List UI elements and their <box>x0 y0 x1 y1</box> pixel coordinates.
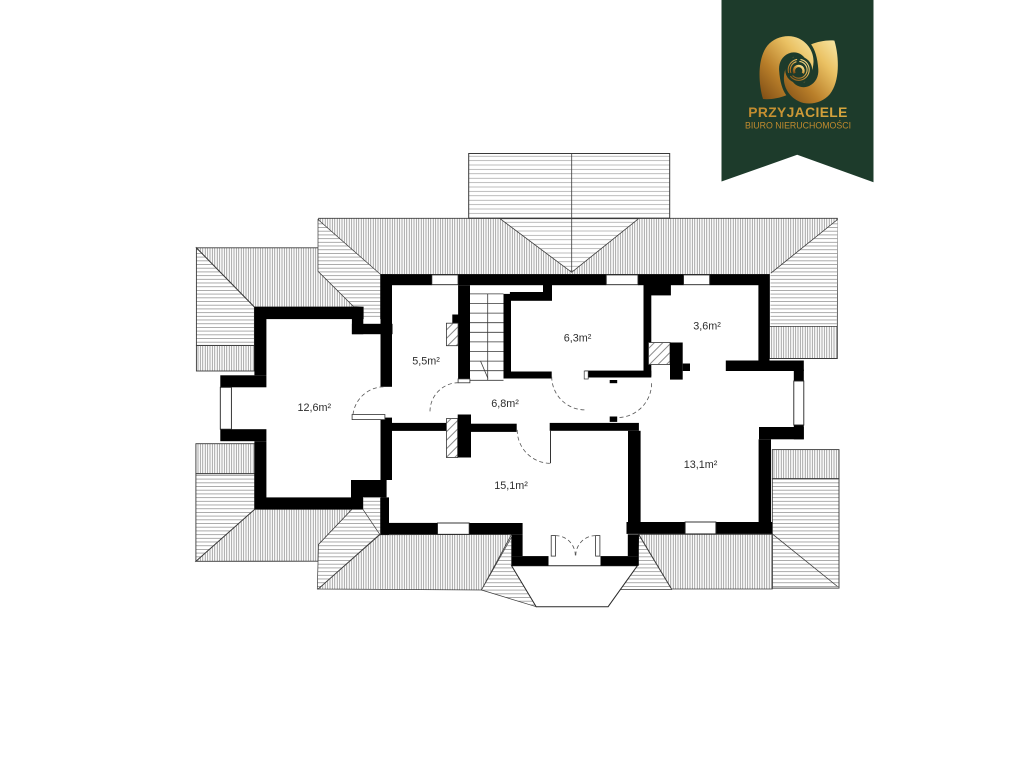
svg-text:PRZYJACIELE: PRZYJACIELE <box>748 105 847 120</box>
svg-text:12,6m²: 12,6m² <box>297 402 331 414</box>
svg-text:6,8m²: 6,8m² <box>491 398 519 410</box>
svg-text:13,1m²: 13,1m² <box>684 459 718 471</box>
svg-text:6,3m²: 6,3m² <box>564 333 592 345</box>
svg-text:BIURO NIERUCHOMOŚCI: BIURO NIERUCHOMOŚCI <box>745 120 851 131</box>
svg-text:15,1m²: 15,1m² <box>494 480 528 492</box>
svg-text:3,6m²: 3,6m² <box>693 321 721 333</box>
svg-text:5,5m²: 5,5m² <box>412 356 440 368</box>
